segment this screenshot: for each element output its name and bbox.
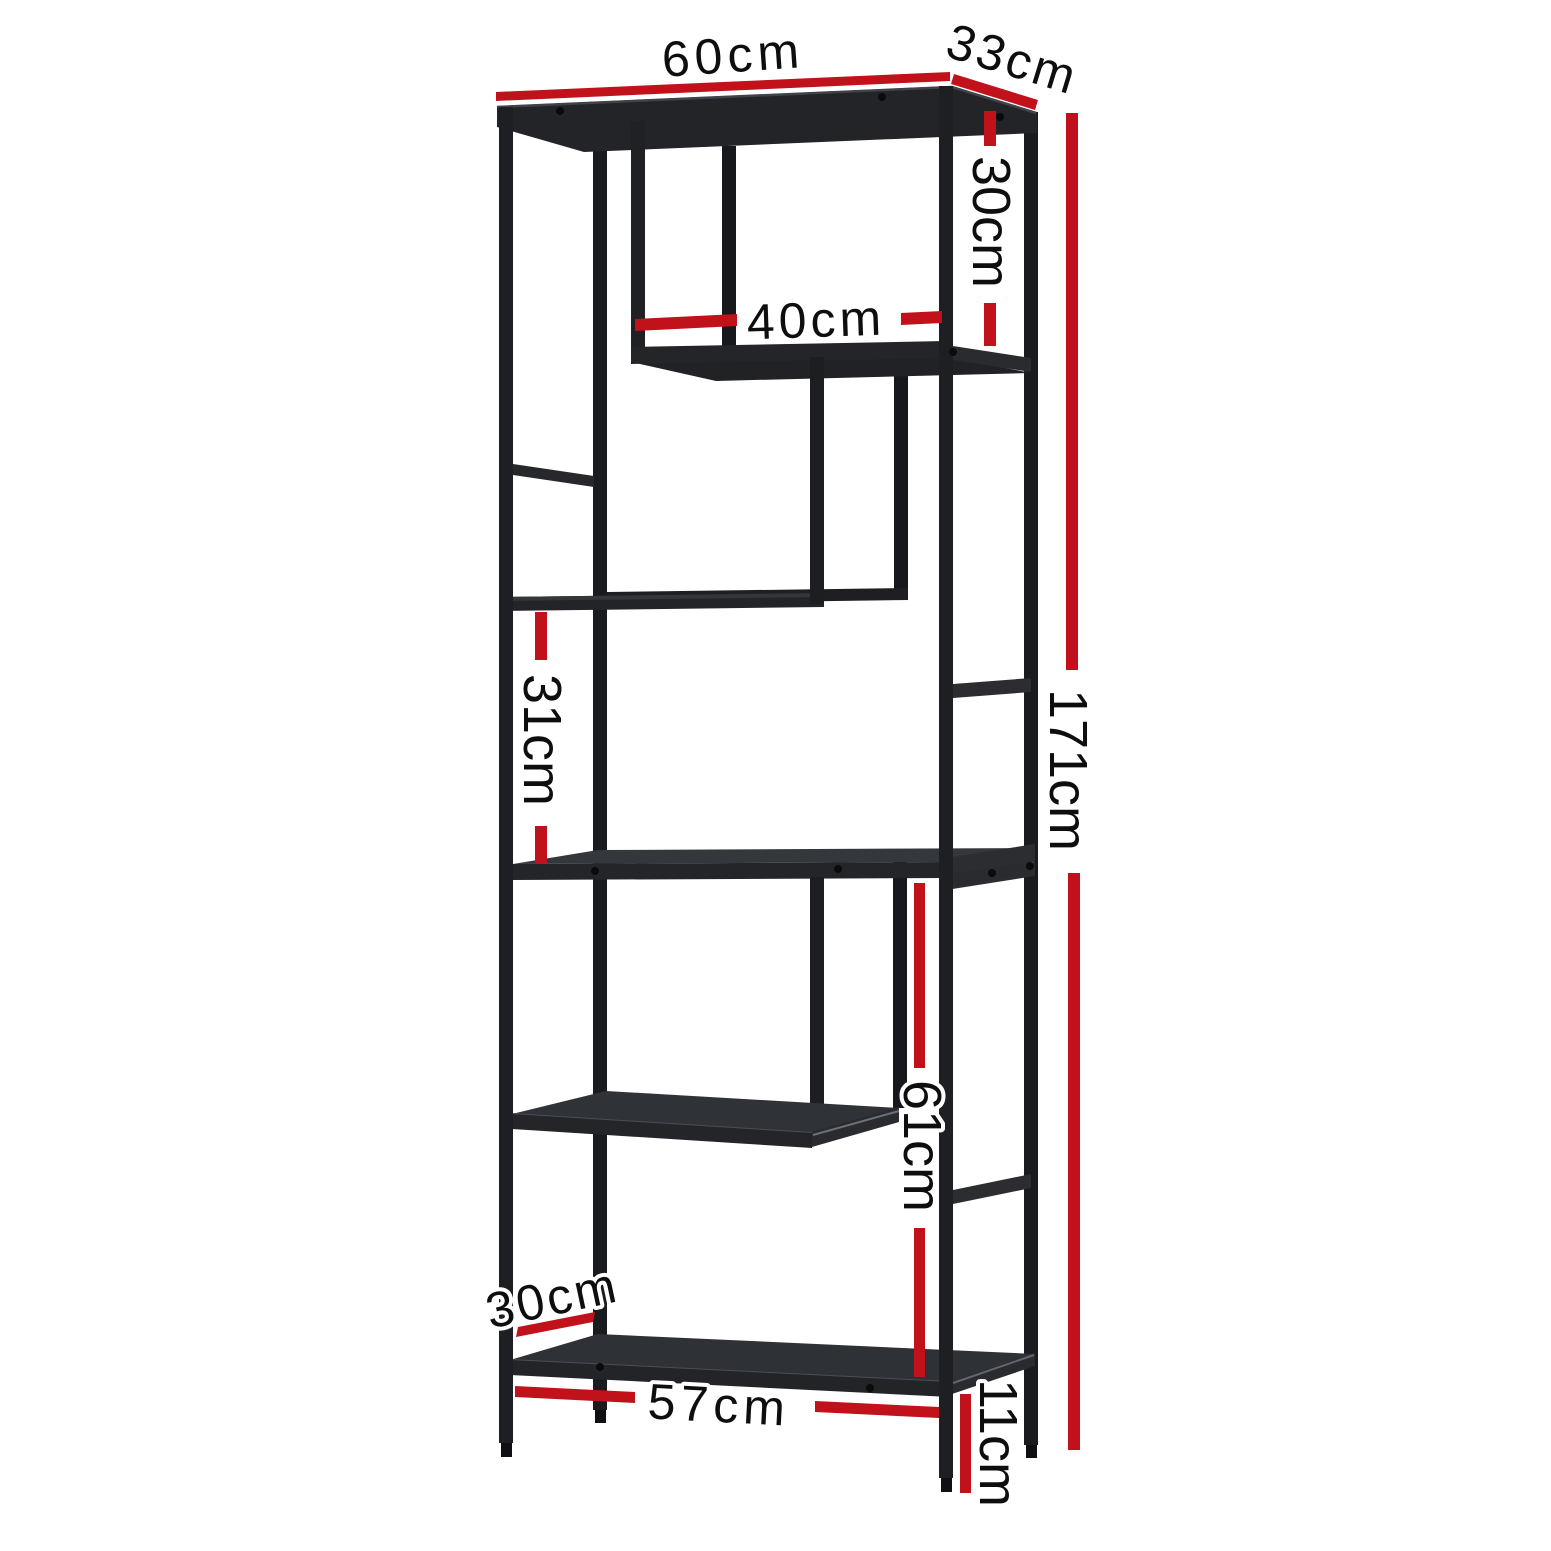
- svg-text:31cm: 31cm: [512, 674, 572, 806]
- svg-text:40cm: 40cm: [746, 290, 886, 351]
- svg-text:11cm: 11cm: [968, 1379, 1028, 1507]
- svg-text:171cm: 171cm: [1038, 689, 1098, 851]
- svg-text:60cm: 60cm: [660, 22, 806, 88]
- svg-text:57cm: 57cm: [646, 1373, 791, 1436]
- svg-text:61cm: 61cm: [892, 1080, 952, 1212]
- svg-text:30cm: 30cm: [961, 156, 1021, 288]
